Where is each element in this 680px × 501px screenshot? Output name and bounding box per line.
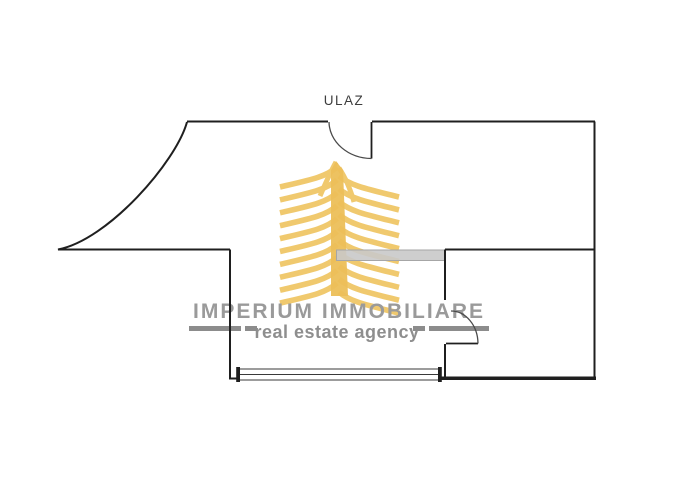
floor-plan-canvas: IMPERIUM IMMOBILIARE real estate agency — [0, 0, 680, 501]
entrance-label: ULAZ — [324, 93, 365, 108]
floorplan-drawing — [0, 0, 680, 501]
window-left-cap — [236, 367, 240, 382]
entrance-door — [329, 122, 372, 159]
gray-partition-wall — [337, 250, 446, 261]
window — [236, 367, 442, 382]
entrance-door-swing-arc — [329, 122, 372, 159]
interior-door-swing-arc — [451, 311, 478, 344]
curved-left-wall — [58, 122, 230, 250]
interior-walls — [445, 250, 595, 380]
window-right-cap — [438, 367, 442, 382]
interior-door — [446, 311, 478, 344]
